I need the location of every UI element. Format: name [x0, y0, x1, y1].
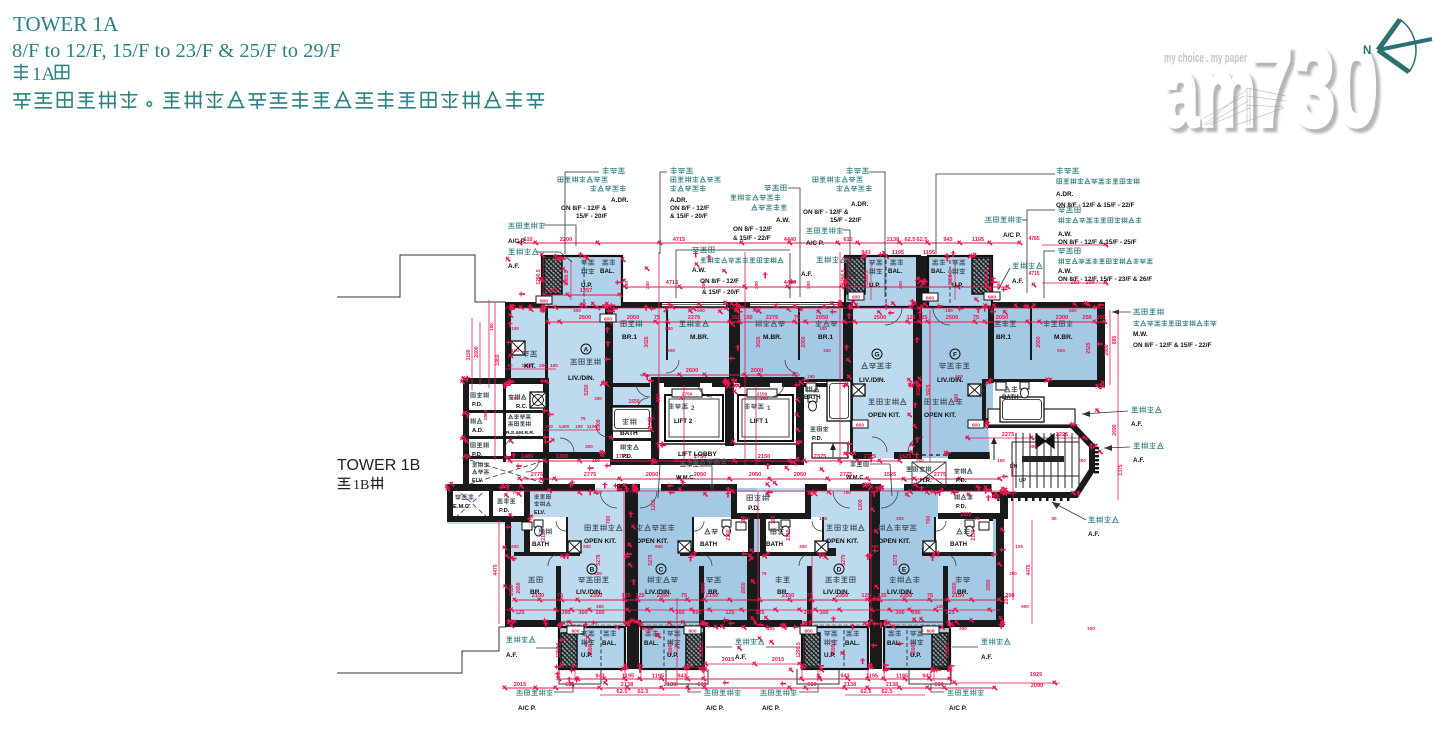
svg-text:A.F.: A.F.: [981, 654, 993, 661]
svg-text:75: 75: [927, 593, 933, 599]
svg-text:2650: 2650: [516, 582, 522, 593]
svg-text:M.BR.: M.BR.: [1054, 334, 1073, 341]
svg-text:2725: 2725: [864, 454, 876, 460]
svg-text:2775: 2775: [934, 472, 946, 478]
svg-text:600: 600: [926, 296, 934, 302]
svg-text:100: 100: [1087, 626, 1095, 631]
svg-text:1525: 1525: [899, 454, 911, 460]
svg-text:62.5: 62.5: [617, 689, 628, 695]
svg-text:885: 885: [1112, 336, 1118, 345]
svg-text:2600: 2600: [579, 315, 591, 321]
svg-text:2138: 2138: [886, 682, 898, 688]
svg-text:2150: 2150: [971, 529, 977, 540]
svg-text:BR.: BR.: [708, 589, 720, 596]
svg-text:4475: 4475: [1026, 564, 1032, 575]
svg-text:75: 75: [761, 571, 767, 576]
svg-text:5275: 5275: [648, 554, 654, 565]
svg-text:300: 300: [596, 604, 604, 609]
svg-text:M.BR.: M.BR.: [690, 334, 709, 341]
svg-text:M.W.: M.W.: [1133, 331, 1148, 338]
svg-text:BR.: BR.: [957, 589, 969, 596]
svg-text:OPEN KIT.: OPEN KIT.: [826, 538, 858, 545]
svg-text:1195: 1195: [866, 674, 878, 680]
svg-text:1400: 1400: [559, 424, 570, 430]
svg-text:50: 50: [1051, 516, 1057, 521]
svg-text:A.F.: A.F.: [1133, 457, 1145, 464]
svg-text:BAL.: BAL.: [888, 268, 903, 275]
svg-text:2600: 2600: [686, 368, 698, 374]
svg-text:62.5: 62.5: [861, 689, 872, 695]
svg-text:P.D.: P.D.: [472, 452, 483, 458]
svg-text:1A: 1A: [32, 64, 56, 85]
svg-text:5275: 5275: [596, 554, 602, 565]
svg-text:2200: 2200: [560, 237, 572, 243]
svg-text:2300: 2300: [1056, 315, 1068, 321]
svg-text:100: 100: [489, 323, 494, 331]
svg-text:2650: 2650: [509, 584, 515, 595]
svg-text:BR.: BR.: [777, 589, 789, 596]
svg-text:2325: 2325: [960, 512, 971, 518]
svg-text:4470: 4470: [493, 564, 499, 575]
svg-text:900: 900: [665, 326, 673, 331]
svg-text:2: 2: [691, 405, 695, 412]
svg-text:1195: 1195: [892, 250, 904, 256]
svg-text:300: 300: [895, 610, 904, 616]
svg-text:100: 100: [511, 348, 519, 353]
svg-text:A/C P.: A/C P.: [508, 238, 526, 245]
svg-text:2050: 2050: [749, 472, 761, 478]
svg-text:943: 943: [840, 674, 849, 680]
svg-text:2500: 2500: [946, 315, 958, 321]
svg-text:3025: 3025: [756, 336, 762, 347]
svg-text:U.P.: U.P.: [869, 282, 881, 289]
svg-text:610: 610: [843, 237, 852, 243]
svg-text:600: 600: [988, 295, 996, 301]
svg-text:200: 200: [959, 626, 967, 631]
svg-text:2890: 2890: [1104, 344, 1110, 355]
svg-text:A/C P.: A/C P.: [518, 705, 536, 712]
svg-text:125: 125: [515, 610, 524, 616]
svg-text:LIV./DIN.: LIV./DIN.: [645, 589, 672, 596]
svg-text:125: 125: [906, 315, 915, 321]
svg-text:P.D.: P.D.: [748, 505, 760, 512]
svg-text:BAL.: BAL.: [644, 640, 659, 647]
svg-text:125: 125: [767, 626, 775, 631]
svg-text:1375: 1375: [1118, 464, 1124, 475]
svg-text:R.C.: R.C.: [516, 404, 528, 410]
svg-text:150: 150: [592, 458, 600, 463]
svg-text:125: 125: [861, 593, 870, 599]
svg-text:75: 75: [678, 396, 684, 401]
svg-text:2090: 2090: [1031, 683, 1043, 689]
svg-text:ON 8/F - 12/F: ON 8/F - 12/F: [670, 205, 709, 212]
svg-text:200: 200: [624, 281, 629, 289]
svg-text:A.W.: A.W.: [692, 267, 706, 274]
svg-text:75: 75: [557, 593, 563, 599]
svg-text:2525: 2525: [1086, 342, 1092, 353]
svg-text:300: 300: [573, 308, 581, 313]
svg-text:2150: 2150: [786, 529, 792, 540]
svg-text:300: 300: [594, 396, 602, 401]
svg-text:& 15/F - 20/F: & 15/F - 20/F: [702, 289, 740, 296]
svg-text:610: 610: [697, 682, 706, 688]
svg-text:2050: 2050: [996, 315, 1008, 321]
svg-text:KIT.: KIT.: [524, 363, 536, 370]
svg-text:100: 100: [819, 326, 827, 331]
svg-text:300: 300: [585, 444, 593, 449]
svg-text:& 15/F - 22/F: & 15/F - 22/F: [733, 235, 771, 242]
svg-text:62.5: 62.5: [905, 237, 916, 243]
svg-text:LIFT 1: LIFT 1: [750, 418, 769, 425]
svg-text:A.F.: A.F.: [801, 271, 813, 278]
svg-text:943: 943: [677, 674, 686, 680]
svg-text:A/C P.: A/C P.: [706, 705, 724, 712]
svg-text:B: B: [590, 566, 595, 573]
svg-text:75: 75: [681, 593, 687, 599]
svg-text:A.W.: A.W.: [776, 217, 790, 224]
svg-text:2050: 2050: [816, 315, 828, 321]
svg-text:300: 300: [647, 416, 655, 421]
svg-text:300: 300: [578, 610, 587, 616]
svg-text:A.DR.: A.DR.: [851, 201, 869, 208]
svg-text:75: 75: [973, 315, 979, 321]
svg-text:4715: 4715: [673, 237, 685, 243]
svg-text:943: 943: [943, 237, 952, 243]
svg-text:600: 600: [604, 317, 612, 323]
svg-text:A.F.: A.F.: [1012, 278, 1024, 285]
svg-text:125: 125: [877, 593, 886, 599]
svg-text:LIV./DIN.: LIV./DIN.: [937, 377, 964, 384]
svg-text:900: 900: [697, 308, 705, 313]
svg-text:75: 75: [974, 516, 980, 521]
svg-text:600: 600: [1057, 348, 1065, 353]
svg-text:3150: 3150: [466, 349, 472, 360]
svg-text:LIV./DIN.: LIV./DIN.: [823, 589, 850, 596]
svg-text:2138: 2138: [664, 682, 676, 688]
svg-text:1195: 1195: [622, 674, 634, 680]
svg-text:A.DR.: A.DR.: [670, 197, 688, 204]
svg-text:ON 8/F - 12/F, 15/F - 23/F & 2: ON 8/F - 12/F, 15/F - 23/F & 26/F: [1058, 276, 1152, 283]
svg-text:A.F.: A.F.: [1088, 531, 1100, 538]
svg-text:1B: 1B: [353, 478, 369, 493]
svg-text:200: 200: [1096, 315, 1105, 321]
svg-text:U.P.: U.P.: [581, 282, 593, 289]
svg-text:610: 610: [807, 682, 816, 688]
svg-text:600: 600: [571, 629, 579, 635]
svg-text:A.F.: A.F.: [508, 263, 520, 270]
svg-text:300: 300: [760, 396, 768, 401]
svg-text:A.W.: A.W.: [1058, 268, 1072, 275]
svg-text:75: 75: [794, 315, 800, 321]
svg-text:900: 900: [1029, 444, 1037, 449]
svg-text:BAL.: BAL.: [602, 640, 617, 647]
svg-text:A: A: [584, 346, 589, 353]
svg-text:250: 250: [545, 424, 553, 429]
svg-text:1200: 1200: [651, 499, 657, 510]
svg-text:2650: 2650: [986, 579, 992, 590]
svg-text:& 15/F - 20/F: & 15/F - 20/F: [670, 213, 708, 220]
svg-text:1290.5: 1290.5: [796, 642, 802, 658]
svg-text:200: 200: [1004, 596, 1010, 605]
svg-text:1200: 1200: [858, 499, 864, 510]
svg-text:2276: 2276: [688, 315, 700, 321]
svg-text:1300: 1300: [556, 454, 568, 460]
svg-text:900: 900: [1078, 458, 1086, 463]
svg-text:OPEN KIT.: OPEN KIT.: [636, 538, 668, 545]
svg-text:TOWER 1B: TOWER 1B: [337, 457, 420, 474]
svg-text:DN: DN: [1010, 464, 1018, 470]
svg-text:A.F.: A.F.: [735, 654, 747, 661]
svg-text:943: 943: [595, 674, 604, 680]
svg-text:200: 200: [511, 544, 519, 549]
svg-text:1290.5: 1290.5: [699, 642, 705, 658]
svg-text:UP: UP: [1019, 478, 1027, 484]
svg-text:2138: 2138: [621, 682, 633, 688]
svg-text:U.P.: U.P.: [581, 652, 593, 659]
svg-text:1550: 1550: [628, 399, 639, 405]
svg-text:125: 125: [755, 610, 764, 616]
svg-text:5275: 5275: [841, 554, 847, 565]
svg-text:50: 50: [755, 458, 761, 463]
svg-text:943: 943: [922, 674, 931, 680]
svg-text:OPEN KIT.: OPEN KIT.: [924, 412, 956, 419]
svg-text:125: 125: [725, 610, 734, 616]
svg-text:E.M.C.: E.M.C.: [453, 504, 471, 510]
svg-text:600: 600: [594, 571, 602, 576]
svg-text:2900: 2900: [596, 419, 602, 430]
svg-text:G: G: [874, 351, 879, 358]
svg-text:LIFT LOBBY: LIFT LOBBY: [678, 451, 717, 458]
svg-text:395: 395: [803, 610, 812, 616]
svg-text:700: 700: [606, 516, 612, 525]
svg-text:2275: 2275: [766, 315, 778, 321]
svg-text:BR.1: BR.1: [996, 334, 1011, 341]
svg-text:395: 395: [911, 610, 920, 616]
svg-text:LIV./DIN.: LIV./DIN.: [859, 377, 886, 384]
svg-text:1290.5: 1290.5: [945, 642, 951, 658]
svg-text:300: 300: [819, 610, 828, 616]
svg-text:200: 200: [806, 281, 811, 289]
svg-text:ON 8/F - 12/F: ON 8/F - 12/F: [700, 278, 739, 285]
svg-text:600: 600: [540, 299, 548, 305]
svg-text:5250: 5250: [584, 384, 590, 395]
svg-text:600: 600: [926, 629, 934, 635]
svg-text:LIV./DIN.: LIV./DIN.: [576, 589, 603, 596]
svg-text:2050: 2050: [627, 315, 639, 321]
svg-text:700: 700: [843, 490, 851, 495]
svg-text:A/C P.: A/C P.: [806, 240, 824, 247]
svg-text:250: 250: [1082, 315, 1091, 321]
svg-text:2050: 2050: [694, 472, 706, 478]
svg-text:OPEN KIT.: OPEN KIT.: [868, 412, 900, 419]
svg-text:600: 600: [688, 629, 696, 635]
svg-text:BR.1: BR.1: [622, 334, 637, 341]
svg-text:BATH: BATH: [532, 541, 549, 548]
svg-text:1195: 1195: [923, 250, 935, 256]
svg-text:BAL.: BAL.: [887, 640, 902, 647]
svg-text:75: 75: [512, 490, 518, 495]
svg-text:730: 730: [1250, 24, 1378, 150]
svg-text:900: 900: [656, 394, 662, 403]
svg-text:U.P.: U.P.: [824, 652, 836, 659]
svg-text:200: 200: [898, 281, 903, 289]
svg-text:610: 610: [934, 682, 943, 688]
svg-text:2650: 2650: [701, 582, 707, 593]
svg-text:8/F to 12/F, 15/F to 23/F & 25: 8/F to 12/F, 15/F to 23/F & 25/F to 29/F: [12, 40, 341, 62]
svg-text:2015: 2015: [722, 657, 734, 663]
svg-text:A.W.: A.W.: [1058, 231, 1072, 238]
svg-text:2138: 2138: [887, 237, 899, 243]
svg-text:BATH: BATH: [950, 541, 967, 548]
svg-text:OPEN KIT.: OPEN KIT.: [584, 538, 616, 545]
svg-text:2138: 2138: [844, 682, 856, 688]
svg-text:A.DR.: A.DR.: [611, 197, 629, 204]
svg-text:BATH: BATH: [804, 394, 820, 401]
svg-text:125: 125: [635, 593, 644, 599]
svg-text:2050: 2050: [1036, 336, 1042, 347]
svg-text:1950: 1950: [483, 409, 489, 420]
svg-text:TOWER 1A: TOWER 1A: [13, 12, 119, 36]
svg-text:1950: 1950: [495, 354, 501, 365]
svg-text:100: 100: [595, 610, 604, 616]
svg-text:200: 200: [916, 458, 924, 463]
svg-text:R.S.&M.R.R.: R.S.&M.R.R.: [506, 430, 535, 436]
svg-text:ON 8/F - 12/F & 15/F - 22/F: ON 8/F - 12/F & 15/F - 22/F: [1133, 342, 1212, 349]
svg-text:BATH: BATH: [766, 541, 783, 548]
svg-text:150: 150: [594, 490, 602, 495]
svg-text:100: 100: [550, 363, 558, 368]
svg-text:N: N: [1363, 45, 1371, 57]
svg-text:200: 200: [754, 281, 759, 289]
svg-text:1195: 1195: [972, 237, 984, 243]
svg-text:OPEN KIT.: OPEN KIT.: [878, 538, 910, 545]
svg-text:150: 150: [945, 308, 953, 313]
svg-text:E: E: [902, 566, 907, 573]
svg-text:A/C P.: A/C P.: [1003, 232, 1021, 239]
svg-text:700: 700: [926, 516, 932, 525]
svg-text:150: 150: [742, 516, 750, 521]
svg-text:1290.5: 1290.5: [984, 269, 990, 285]
svg-text:50: 50: [507, 363, 513, 368]
svg-text:150: 150: [673, 458, 681, 463]
svg-text:2650: 2650: [741, 582, 747, 593]
svg-text:2050: 2050: [801, 336, 807, 347]
svg-text:15/F - 22/F: 15/F - 22/F: [830, 217, 861, 224]
svg-text:125: 125: [819, 516, 827, 521]
svg-text:150: 150: [807, 374, 815, 379]
svg-text:ELV.: ELV.: [534, 510, 546, 516]
svg-text:200: 200: [1009, 571, 1017, 576]
svg-text:2150: 2150: [541, 529, 547, 540]
svg-text:P.D.: P.D.: [622, 454, 633, 460]
svg-text:200: 200: [645, 281, 650, 289]
svg-text:LIV./DIN.: LIV./DIN.: [568, 375, 595, 382]
svg-text:BATH: BATH: [1002, 394, 1018, 401]
svg-text:600: 600: [856, 423, 864, 429]
svg-text:15/F - 20/F: 15/F - 20/F: [576, 213, 607, 220]
svg-text:2015: 2015: [514, 682, 526, 688]
svg-text:A.F.: A.F.: [1131, 421, 1143, 428]
svg-text:2375: 2375: [814, 454, 826, 460]
svg-text:62.5: 62.5: [882, 689, 893, 695]
svg-text:5275: 5275: [893, 554, 899, 565]
svg-text:5925: 5925: [926, 384, 932, 395]
svg-text:1195: 1195: [652, 674, 664, 680]
svg-text:U.P.: U.P.: [910, 652, 922, 659]
svg-text:200: 200: [539, 363, 547, 368]
svg-text:300: 300: [896, 516, 904, 521]
svg-text:300: 300: [799, 544, 807, 549]
svg-text:2150: 2150: [726, 529, 732, 540]
svg-text:3025: 3025: [644, 336, 650, 347]
svg-text:1485: 1485: [521, 454, 533, 460]
svg-text:62.5: 62.5: [638, 689, 649, 695]
svg-text:P.D.: P.D.: [472, 402, 483, 408]
svg-text:U.P.: U.P.: [952, 282, 964, 289]
svg-text:2050: 2050: [794, 472, 806, 478]
svg-text:4785: 4785: [1028, 236, 1039, 242]
svg-text:W.M.C.: W.M.C.: [676, 475, 695, 481]
svg-text:A/C P.: A/C P.: [762, 705, 780, 712]
svg-text:2275: 2275: [1002, 432, 1014, 438]
svg-text:BR.1: BR.1: [818, 334, 833, 341]
svg-text:P.D.: P.D.: [812, 436, 823, 442]
svg-text:4715: 4715: [1028, 271, 1039, 277]
svg-text:BAL.: BAL.: [600, 268, 615, 275]
svg-text:A.DR.: A.DR.: [1056, 191, 1074, 198]
svg-text:300: 300: [667, 348, 675, 353]
svg-text:A/C P.: A/C P.: [949, 705, 967, 712]
svg-text:my choice . my paper: my choice . my paper: [1164, 51, 1247, 65]
svg-text:A.D.: A.D.: [472, 428, 484, 434]
svg-text:1: 1: [767, 405, 771, 412]
svg-text:2775: 2775: [531, 472, 543, 478]
svg-text:125: 125: [1015, 544, 1023, 549]
svg-text:125: 125: [936, 604, 944, 609]
svg-text:P.D.: P.D.: [956, 504, 967, 510]
svg-text:2600: 2600: [474, 346, 480, 357]
svg-text:ON 8/F - 12/F & 15/F - 22/F: ON 8/F - 12/F & 15/F - 22/F: [1056, 202, 1135, 209]
svg-text:125: 125: [1009, 490, 1017, 495]
svg-text:2500: 2500: [874, 315, 886, 321]
svg-text:1195: 1195: [896, 674, 908, 680]
svg-text:W.M.C.: W.M.C.: [846, 475, 865, 481]
svg-text:100: 100: [511, 326, 519, 331]
svg-text:BR.: BR.: [530, 589, 542, 596]
svg-text:100: 100: [997, 458, 1005, 463]
svg-text:125: 125: [621, 593, 630, 599]
svg-text:LIFT 2: LIFT 2: [674, 418, 693, 425]
svg-text:943: 943: [548, 288, 557, 294]
svg-text:2775: 2775: [584, 472, 596, 478]
svg-text:ON 8/F - 12/F &: ON 8/F - 12/F &: [803, 209, 849, 216]
svg-text:H.R.: H.R.: [920, 478, 932, 484]
svg-text:BATH: BATH: [700, 541, 717, 548]
svg-text:P.D.: P.D.: [956, 478, 967, 484]
svg-text:1925: 1925: [1030, 672, 1042, 678]
svg-text:C: C: [659, 566, 664, 573]
svg-text:ELV.: ELV.: [472, 478, 484, 484]
svg-text:700: 700: [771, 516, 777, 525]
svg-text:BAL.: BAL.: [845, 640, 860, 647]
svg-text:P.D.: P.D.: [499, 508, 510, 514]
svg-text:4440: 4440: [784, 237, 796, 243]
svg-text:D: D: [837, 566, 842, 573]
svg-text:600: 600: [1069, 308, 1077, 313]
svg-text:2050: 2050: [646, 472, 658, 478]
svg-text:A.F.: A.F.: [506, 652, 518, 659]
svg-text:F: F: [953, 351, 957, 358]
